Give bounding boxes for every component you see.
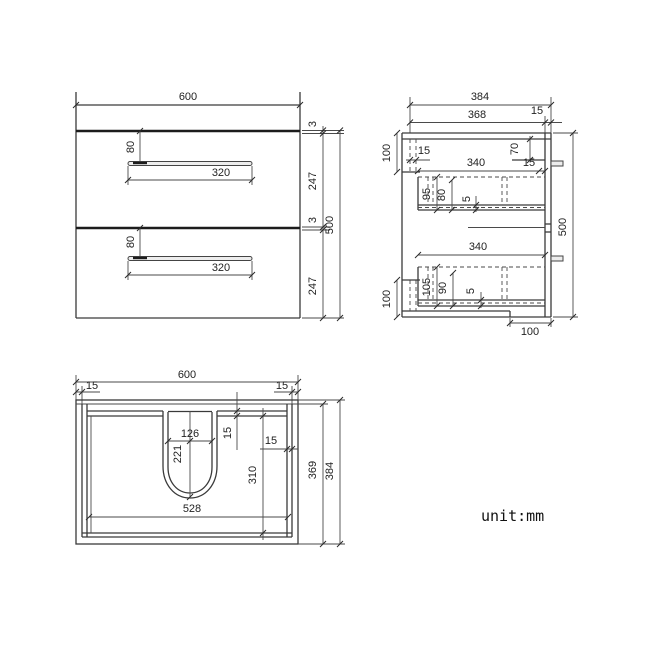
front-view: 600 80 320 80 320 3 247 3 247 500	[73, 91, 344, 321]
dim-side-drawer-front-gap-1: 15	[523, 157, 535, 169]
dim-top-inner-depth: 310	[247, 466, 259, 484]
dim-front-drawer-height-1: 247	[307, 172, 319, 190]
side-view: 384 368 15 100 15 70 340 15 95 80 5 500 …	[381, 91, 578, 338]
dim-front-width: 600	[179, 91, 197, 103]
dim-front-handle-offset-2: 80	[125, 236, 137, 248]
dim-top-inner-width: 528	[183, 503, 201, 515]
dim-top-cutout-width: 126	[181, 428, 199, 440]
dim-side-drawer-depth-1: 340	[467, 157, 485, 169]
dim-top-edge-inset-right: 15	[276, 380, 288, 392]
dim-top-body-depth: 369	[307, 461, 319, 479]
top-view: 600 15 15 126 221 15 310 15 528 369 384	[73, 369, 345, 547]
dim-front-handle-width-1: 320	[212, 167, 230, 179]
dim-side-inner-depth: 368	[468, 109, 486, 121]
dim-front-drawer-height-2: 247	[307, 277, 319, 295]
dim-front-gap-1: 3	[307, 121, 319, 127]
drawer2-handle-side	[551, 256, 563, 261]
dim-top-depth: 384	[324, 462, 336, 480]
technical-drawing-page: 600 80 320 80 320 3 247 3 247 500	[0, 0, 650, 650]
dim-side-height: 500	[557, 218, 569, 236]
dim-side-bracket-thickness-top: 15	[418, 145, 430, 157]
dim-side-drawer-bottom-2: 5	[465, 288, 477, 294]
dim-side-drawer-side-1: 80	[436, 189, 448, 201]
dim-side-bracket-height-top: 100	[381, 144, 393, 162]
dim-front-handle-offset-1: 80	[125, 141, 137, 153]
dim-side-drawer-depth-2: 340	[469, 241, 487, 253]
dim-front-handle-width-2: 320	[212, 262, 230, 274]
dim-top-edge-inset-left: 15	[86, 380, 98, 392]
dim-side-bracket-height-bottom: 100	[381, 290, 393, 308]
dim-side-drawer-bottom-1: 5	[461, 196, 473, 202]
dim-front-height: 500	[324, 216, 336, 234]
dim-top-width: 600	[178, 369, 196, 381]
dim-side-drawer-back-2: 105	[421, 278, 433, 296]
dim-side-notch-width: 100	[521, 326, 539, 338]
dim-top-wall-right: 15	[265, 435, 277, 447]
dim-side-drawer-side-2: 90	[437, 282, 449, 294]
dim-top-cutout-depth: 221	[172, 445, 184, 463]
dim-side-depth: 384	[471, 91, 489, 103]
dim-side-drawer-back-1: 95	[421, 188, 433, 200]
dim-side-rail-height: 70	[509, 143, 521, 155]
drawer1-handle-side	[551, 161, 563, 166]
dim-top-back-rail: 15	[222, 427, 234, 439]
dim-side-front-inset: 15	[531, 105, 543, 117]
vanity-cabinet-drawing: 600 80 320 80 320 3 247 3 247 500	[0, 0, 650, 650]
unit-note: unit:mm	[481, 507, 544, 525]
dim-front-gap-2: 3	[307, 217, 319, 223]
